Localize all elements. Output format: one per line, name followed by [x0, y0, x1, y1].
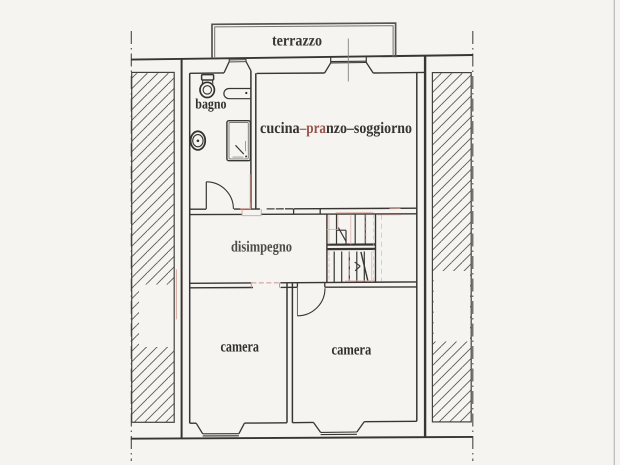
svg-text:–pra: –pra: [299, 120, 326, 137]
svg-text:bagno: bagno: [195, 97, 226, 113]
svg-text:terrazzo: terrazzo: [272, 32, 322, 49]
svg-text:nzo–soggiorno: nzo–soggiorno: [326, 120, 412, 137]
svg-text:disimpegno: disimpegno: [231, 238, 292, 255]
svg-text:cucina: cucina: [260, 120, 300, 137]
svg-text:camera: camera: [332, 342, 372, 359]
svg-text:camera: camera: [221, 338, 260, 355]
